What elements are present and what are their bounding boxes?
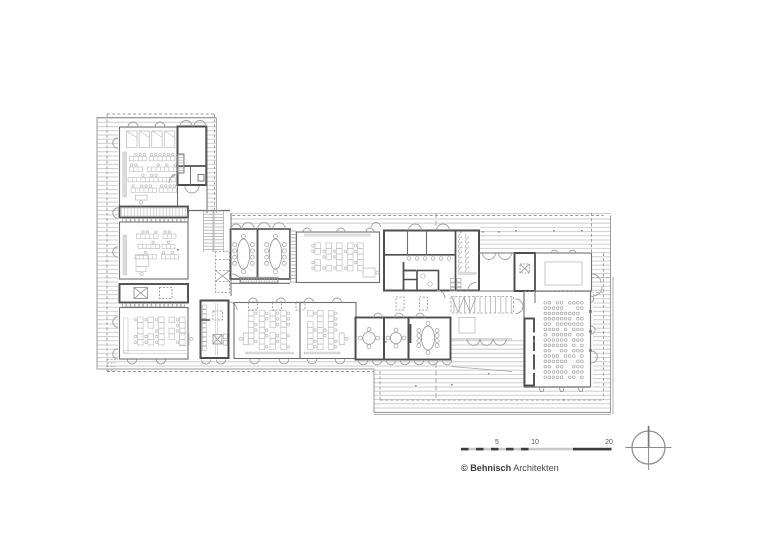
- svg-text:20: 20: [605, 439, 613, 446]
- svg-text:10: 10: [531, 439, 539, 446]
- svg-text:© Behnisch Architekten: © Behnisch Architekten: [461, 463, 559, 473]
- svg-text:5: 5: [495, 439, 499, 446]
